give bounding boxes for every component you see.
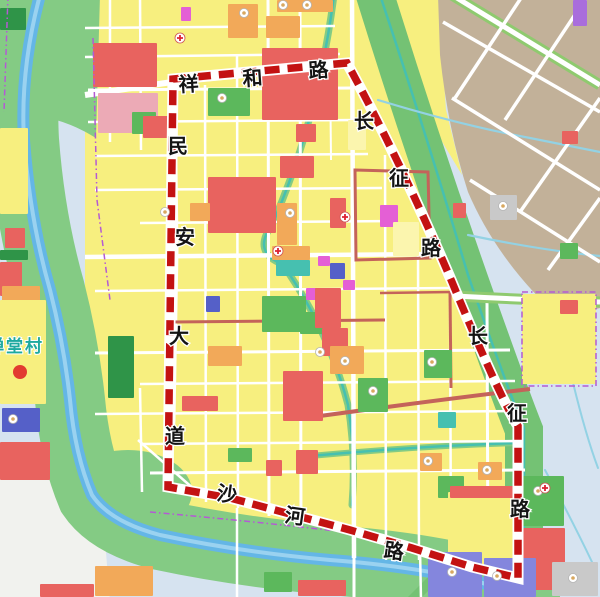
zoning-parcel [93,43,157,87]
zoning-parcel [573,0,587,26]
road-label-changzheng-road-upper: 征 [389,166,409,190]
zoning-parcel [181,7,191,21]
planning-map-image: 祥和路民安大道长征路长征路沙河路禅堂村 [0,0,600,597]
zoning-parcel [190,203,210,221]
zoning-parcel [318,256,330,266]
zoning-parcel [143,116,169,138]
arterial-road [380,292,452,293]
road-label-changzheng-road-lower: 长 [468,324,489,348]
facility-icon-dot [426,459,430,463]
zoning-parcel [280,156,314,178]
facility-icon-dot [371,389,375,393]
road-label-changzheng-road-lower: 征 [507,401,527,425]
zoning-parcel [0,442,50,480]
road-label-xianghe-road: 祥 [178,71,200,96]
road-label-minan-avenue: 安 [175,225,195,249]
zoning-parcel [2,408,40,432]
zoning-parcel [296,124,316,142]
road-label-changzheng-road-lower: 路 [510,497,531,521]
zoning-parcel [562,131,578,144]
road [237,56,238,508]
zoning-parcel [95,566,153,596]
zoning-parcel [453,203,466,218]
zoning-parcel [283,371,323,421]
facility-icon-dot [163,210,167,214]
zoning-parcel [560,243,578,259]
zoning-parcel [208,346,242,366]
zoning-parcel [0,8,26,30]
road-label-xianghe-road: 和 [242,65,264,90]
zoning-parcel [262,296,306,332]
zoning-parcel [522,294,596,384]
facility-icon-dot [318,350,322,354]
road-label-minan-avenue: 道 [165,424,185,448]
road [205,85,206,502]
zoning-parcel [296,450,318,474]
facility-icon-dot [242,11,246,15]
zoning-parcel [0,250,28,260]
zoning-parcel [298,580,346,596]
zoning-parcel [40,584,94,597]
facility-icon-dot [11,417,15,421]
zoning-parcel [266,16,300,38]
facility-icon-dot [281,3,285,7]
facility-icon-dot [536,489,540,493]
zoning-parcel [5,228,25,248]
road-label-shahe-road: 沙 [215,481,238,508]
road-label-changzheng-road-upper: 长 [354,109,375,133]
zoning-parcel [343,280,355,290]
zoning-parcel [438,412,456,428]
facility-icon-dot [220,96,224,100]
road [353,250,354,558]
zoning-parcel [266,460,282,476]
red-dot-icon [13,365,27,379]
zoning-parcel [393,222,419,256]
zoning-parcel [276,260,310,276]
zoning-parcel [208,177,276,233]
road-label-shahe-road: 河 [283,503,306,530]
road-label-changzheng-road-upper: 路 [421,236,442,260]
road-label-xianghe-road: 路 [308,57,331,82]
facility-icon-dot [305,3,309,7]
zoning-parcel [450,486,516,498]
place-label-chantang-village: 禅堂村 [0,336,44,357]
zoning-parcel [560,300,578,314]
zoning-parcel [264,572,292,592]
facility-icon-dot [501,204,505,208]
zoning-parcel [330,263,345,279]
zoning-parcel [315,288,341,328]
facility-icon-dot [450,570,454,574]
zoning-parcel [228,448,252,462]
facility-icon-dot [495,574,499,578]
road [418,255,419,560]
zoning-parcel [206,296,220,312]
zoning-parcel [208,88,250,116]
zoning-parcel [0,128,28,214]
facility-icon-dot [430,360,434,364]
facility-icon-dot [485,468,489,472]
road [85,254,435,257]
zoning-parcel [182,396,218,411]
facility-icon-dot [288,211,292,215]
road-label-minan-avenue: 大 [169,324,189,348]
road-label-minan-avenue: 民 [168,134,188,158]
zoning-parcel [108,336,134,398]
facility-icon-dot [343,359,347,363]
facility-icon-dot [571,576,575,580]
map-canvas: 祥和路民安大道长征路长征路沙河路禅堂村 [0,0,600,597]
